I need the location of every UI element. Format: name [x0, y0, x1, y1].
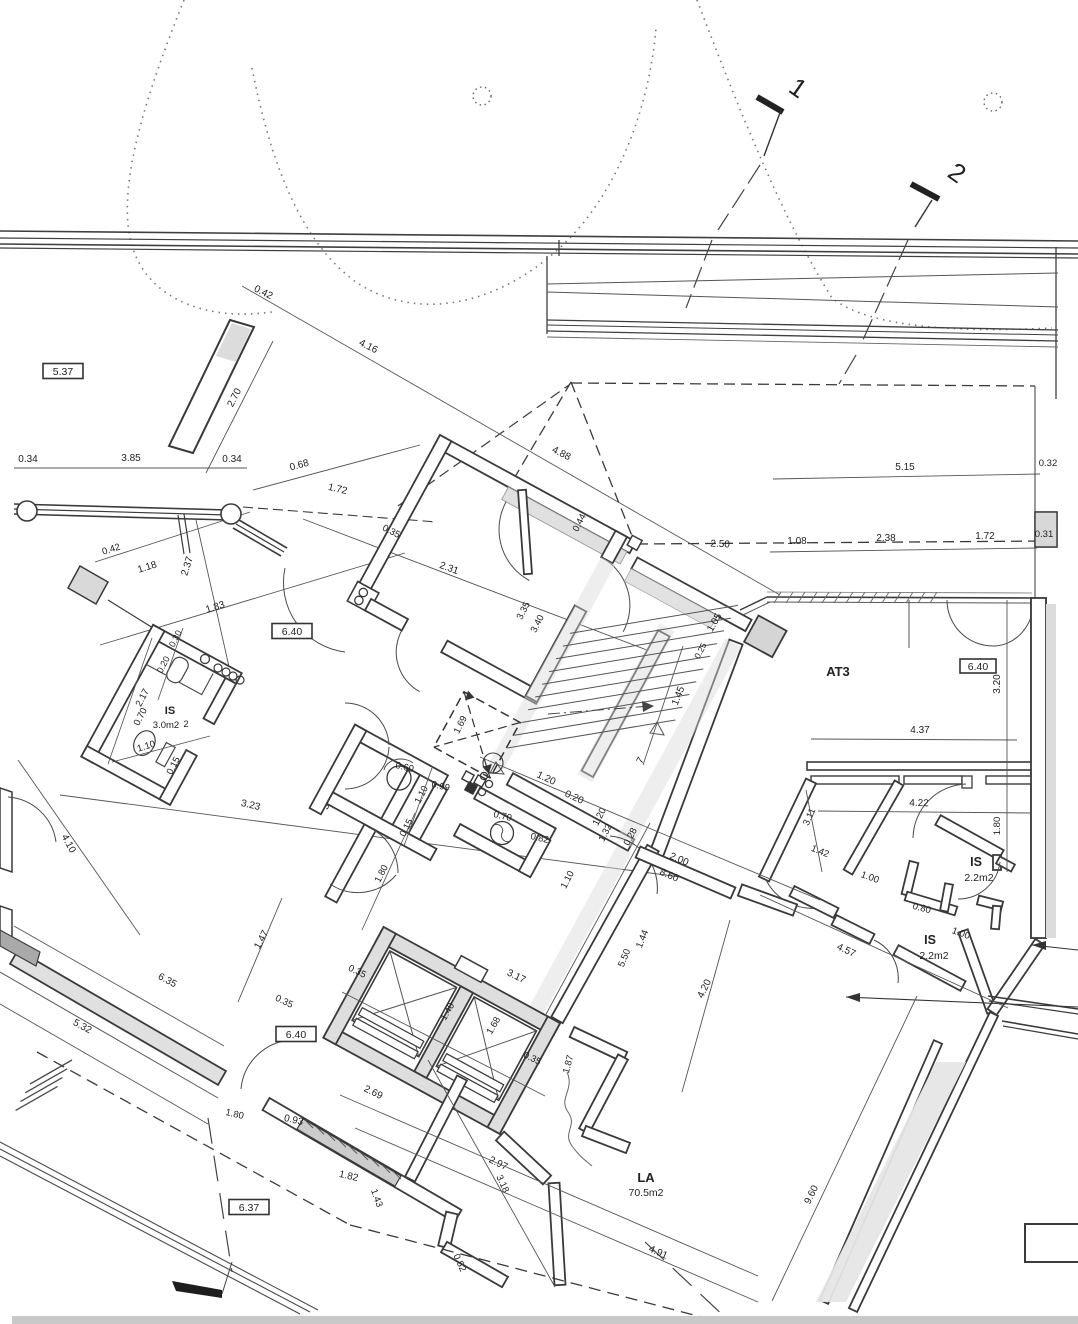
- svg-text:6.37: 6.37: [239, 1202, 260, 1214]
- svg-text:2.2m2: 2.2m2: [919, 950, 948, 962]
- svg-text:2.50: 2.50: [710, 539, 730, 551]
- svg-text:3.0m2: 3.0m2: [153, 720, 179, 731]
- svg-text:0.32: 0.32: [1039, 458, 1058, 469]
- svg-text:5.15: 5.15: [895, 462, 915, 473]
- svg-text:IS: IS: [924, 933, 936, 947]
- svg-text:4.37: 4.37: [910, 725, 930, 736]
- svg-text:AT3: AT3: [826, 664, 850, 679]
- svg-text:LA: LA: [637, 1170, 655, 1185]
- svg-text:70.5m2: 70.5m2: [628, 1187, 663, 1199]
- svg-text:6.40: 6.40: [282, 626, 303, 638]
- svg-text:2.38: 2.38: [876, 533, 896, 544]
- svg-text:2: 2: [183, 719, 188, 730]
- svg-text:6.40: 6.40: [286, 1029, 307, 1041]
- svg-text:3.20: 3.20: [992, 674, 1003, 694]
- svg-text:1.80: 1.80: [992, 817, 1003, 836]
- svg-text:0.31: 0.31: [1035, 529, 1054, 540]
- svg-text:1.08: 1.08: [787, 536, 807, 547]
- svg-text:IS: IS: [970, 855, 982, 869]
- svg-text:IS: IS: [165, 705, 175, 717]
- svg-text:4.22: 4.22: [909, 798, 929, 809]
- svg-text:1.72: 1.72: [975, 531, 995, 542]
- svg-text:0.34: 0.34: [222, 454, 242, 465]
- svg-text:0.34: 0.34: [18, 454, 38, 465]
- svg-text:2.2m2: 2.2m2: [964, 872, 993, 884]
- svg-text:3.85: 3.85: [121, 453, 141, 464]
- svg-text:5.37: 5.37: [53, 366, 74, 378]
- svg-text:6.40: 6.40: [968, 661, 989, 673]
